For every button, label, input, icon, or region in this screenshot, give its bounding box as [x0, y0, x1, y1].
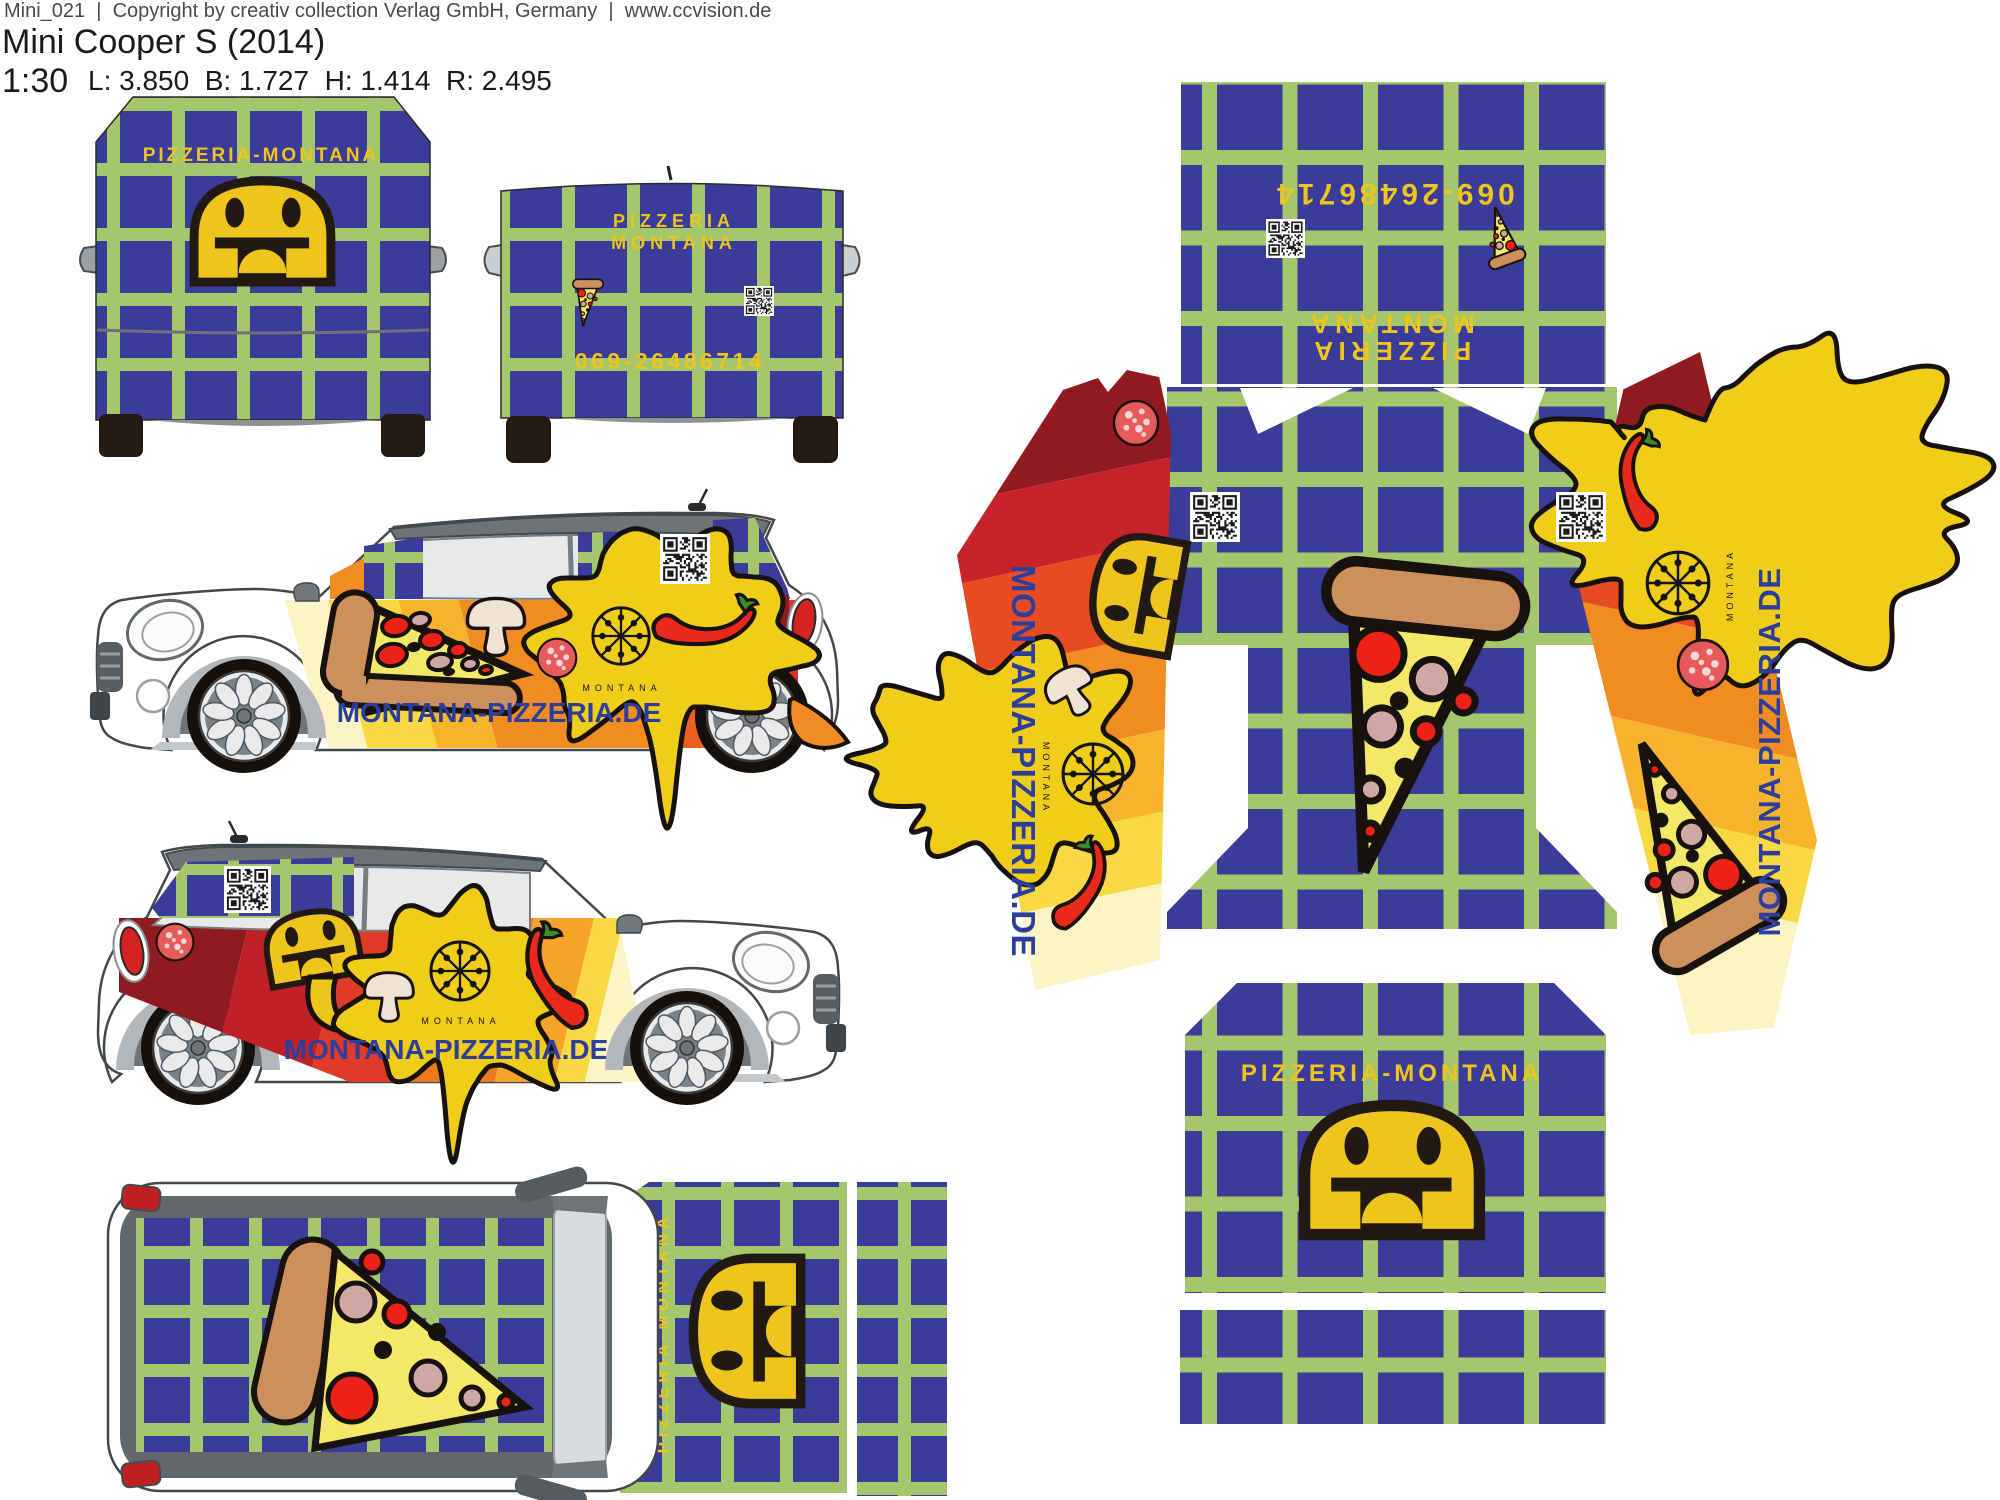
svg-text:MONTANA-PIZZERIA.DE: MONTANA-PIZZERIA.DE — [284, 1034, 609, 1065]
svg-text:L: 3.850 B: 1.727 H: 1.414: L: 3.850 B: 1.727 H: 1.414 R: 2.495 — [88, 65, 552, 96]
svg-text:1:30: 1:30 — [2, 62, 68, 100]
svg-text:MONTANA: MONTANA — [582, 683, 661, 693]
svg-text:PIZZERIA: PIZZERIA — [1309, 336, 1471, 366]
svg-text:PIZZERIA-MONTANA: PIZZERIA-MONTANA — [1241, 1060, 1543, 1087]
svg-text:Mini Cooper S (2014): Mini Cooper S (2014) — [2, 23, 325, 61]
svg-text:MONTANA: MONTANA — [1725, 549, 1735, 621]
svg-text:PIZZERIA-MONTANA: PIZZERIA-MONTANA — [143, 145, 380, 166]
svg-text:MONTANA: MONTANA — [611, 233, 737, 253]
svg-text:MONTANA-PIZZERIA.DE: MONTANA-PIZZERIA.DE — [337, 697, 662, 728]
svg-text:MONTANA-PIZZERIA.DE: MONTANA-PIZZERIA.DE — [1005, 565, 1042, 957]
svg-text:PIZZERIA: PIZZERIA — [613, 211, 735, 231]
svg-text:MONTANA: MONTANA — [421, 1016, 500, 1026]
svg-text:MONTANA: MONTANA — [1305, 309, 1474, 339]
svg-text:069-26486714: 069-26486714 — [1273, 177, 1515, 210]
svg-text:069-26486714: 069-26486714 — [575, 348, 765, 374]
svg-text:Mini_021 | Copyright by crea: Mini_021 | Copyright by creativ collecti… — [4, 0, 771, 22]
svg-text:MONTANA-PIZZERIA.DE: MONTANA-PIZZERIA.DE — [1752, 568, 1787, 937]
